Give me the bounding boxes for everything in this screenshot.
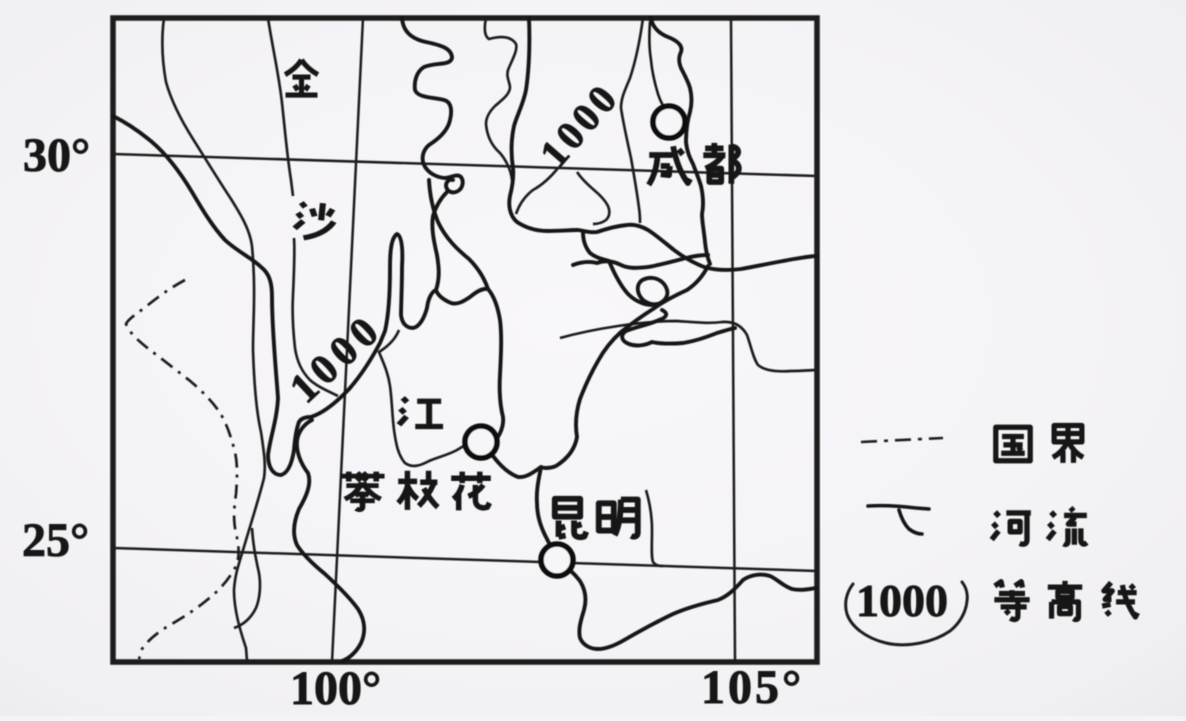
svg-text:25°: 25°: [22, 514, 89, 567]
svg-text:30°: 30°: [23, 129, 90, 182]
svg-text:1000: 1000: [856, 575, 948, 626]
svg-text:100°: 100°: [290, 662, 381, 715]
svg-text:105°: 105°: [701, 661, 804, 714]
